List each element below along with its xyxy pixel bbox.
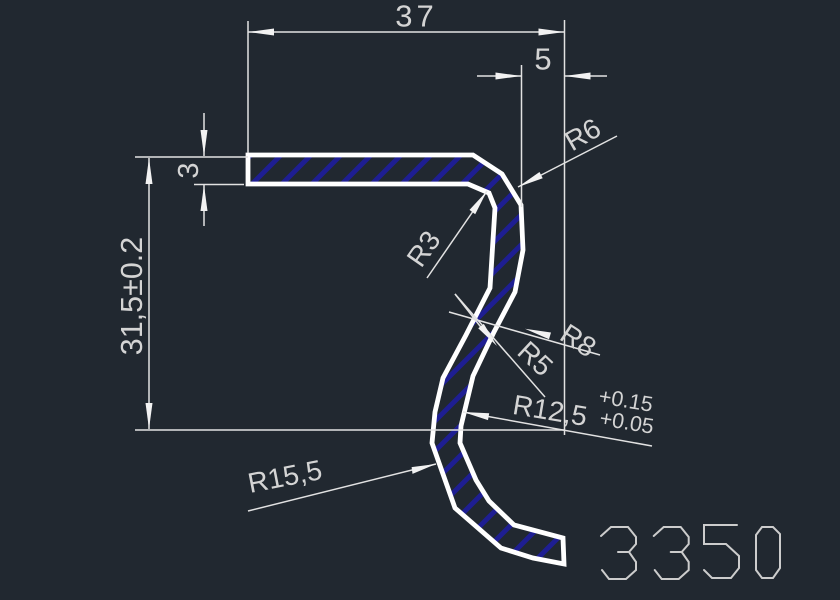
svg-text:5: 5 bbox=[534, 42, 551, 77]
svg-text:3: 3 bbox=[173, 162, 205, 178]
svg-text:37: 37 bbox=[395, 0, 437, 34]
svg-text:31,5±0.2: 31,5±0.2 bbox=[115, 237, 149, 356]
